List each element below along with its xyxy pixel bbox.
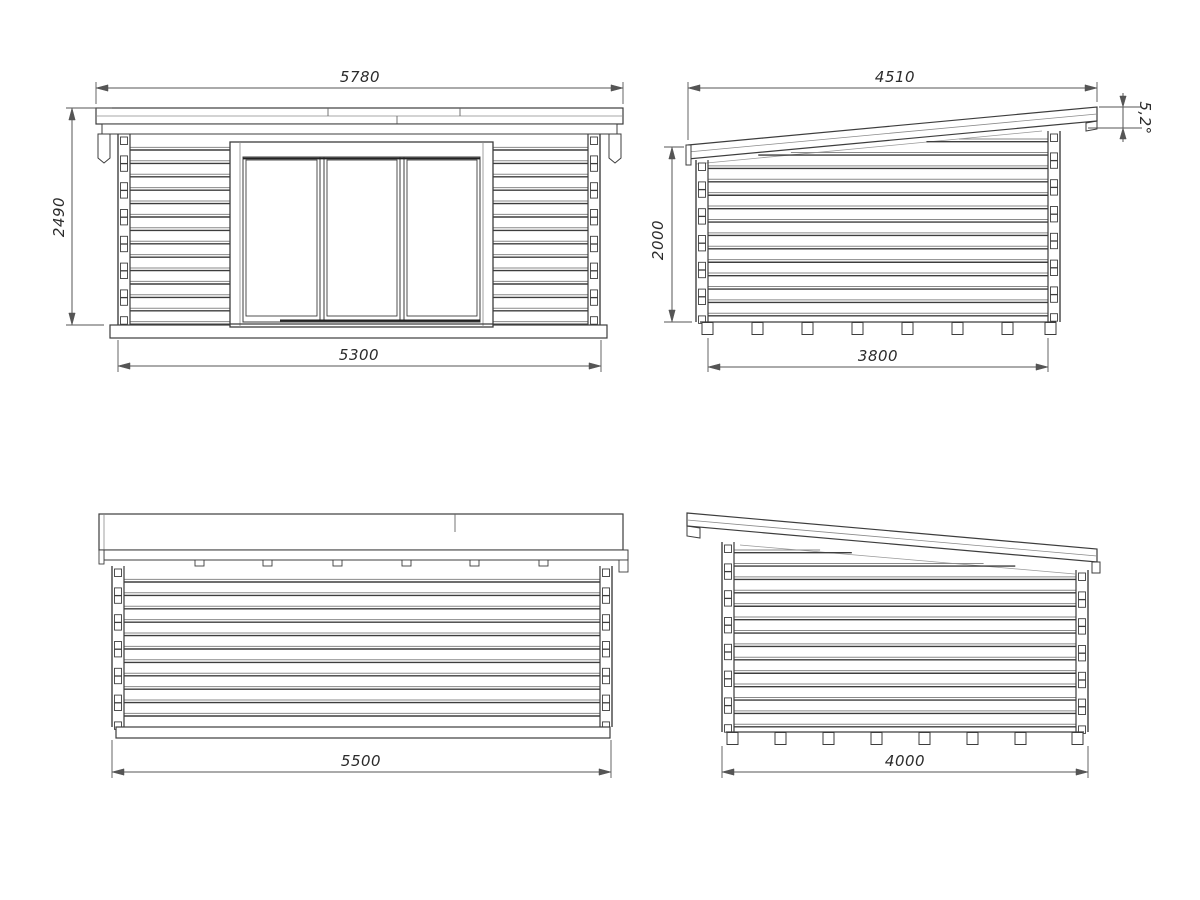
dim-side-right-wall-height: 2000: [649, 220, 667, 260]
side-elevation-right-view: [664, 82, 1142, 372]
dim-back-wall-width: 5500: [341, 752, 381, 770]
front-elevation-view: [66, 82, 623, 372]
dim-front-roof-width: 5780: [340, 68, 380, 86]
side-elevation-left-view: [687, 513, 1100, 778]
dim-front-total-height: 2490: [50, 197, 68, 237]
drawing-canvas: 5780 2490 5300 4510 5,2° 2000 3800 5500 …: [0, 0, 1200, 900]
back-elevation-view: [99, 514, 628, 778]
dim-front-wall-width: 5300: [339, 346, 379, 364]
dim-side-left-wall-length: 4000: [885, 752, 925, 770]
dim-side-right-roof-length: 4510: [875, 68, 915, 86]
dim-side-right-roof-angle: 5,2°: [1136, 101, 1154, 134]
elevation-drawing: 5780 2490 5300 4510 5,2° 2000 3800 5500 …: [0, 0, 1200, 900]
dim-side-right-wall-length: 3800: [858, 347, 898, 365]
